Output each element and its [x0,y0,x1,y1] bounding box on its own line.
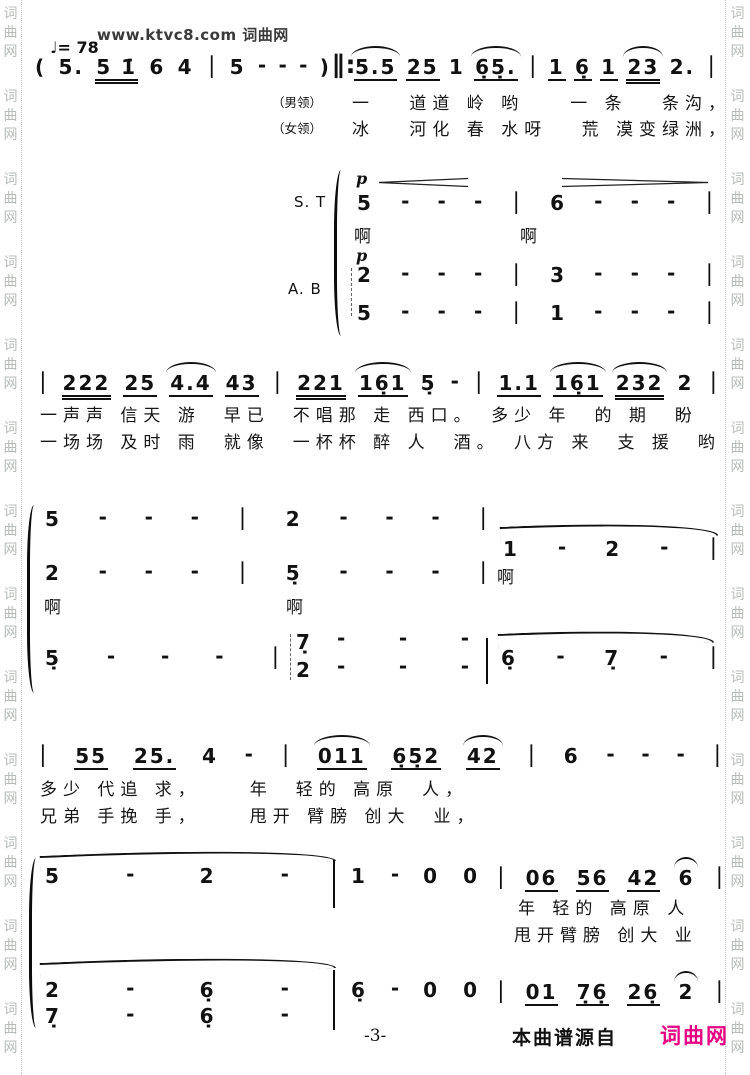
barline: ∣ [279,743,293,767]
chord-connector [290,634,291,680]
slur-arc [40,950,337,981]
right-watermark-column: 词曲网词曲网词曲网词曲网词曲网词曲网词曲网词曲网词曲网词曲网词曲网词曲网词曲网 [729,5,746,1075]
barline: ∣ [706,536,720,560]
note: 1 [502,539,520,560]
dash-note: - [630,191,640,212]
watermark-text: 词曲网 [729,337,746,394]
note: 2 [356,265,374,286]
dash-note: - [336,656,346,677]
verse-notes-line: ∣222254.443∣22116̣15̣-∣1.116̣12322∣ [36,371,720,397]
watermark-text: 词曲网 [2,1001,19,1058]
dash-note: - [338,561,348,582]
watermark-text: 词曲网 [729,88,746,145]
dash-note: - [666,263,676,284]
dash-note: - [605,744,615,765]
watermark-text: 词曲网 [729,752,746,809]
dash-note: - [384,507,394,528]
dash-note: - [398,656,408,677]
note: 25. [133,746,176,770]
barline: ∣ [704,54,718,78]
bass-chord-dashes-bottom: --- [336,658,470,679]
note: 221 [296,373,346,397]
barline: ∣ [494,979,508,1003]
note: 5.5 [354,57,397,81]
barline [333,970,335,1030]
note: 1 [549,303,567,324]
barline: ∣ [702,262,716,286]
barline: ∣ [476,560,490,584]
upper-voice-measure-1: 5-2- [44,866,290,887]
chorus-lyrics-2: 兄弟 手挽 手， 甩开 臂膀 创大 业， [40,802,480,827]
note: 43 [225,373,259,397]
note: 1 [600,57,618,81]
watermark-text: 词曲网 [729,669,746,726]
dash-note: - [278,55,288,76]
dash-note: - [400,263,410,284]
dash-note: - [593,263,603,284]
dash-note: - [106,646,116,667]
system-brace [29,858,38,1028]
dash-note: - [640,744,650,765]
note: 0 [462,866,480,887]
dash-note: - [190,507,200,528]
note: 6̣ [199,1006,217,1027]
barline: ∣ [271,370,285,394]
note: 2 [677,982,695,1003]
dash-note: - [280,978,290,999]
system-brace [334,170,343,336]
note: 232 [615,373,665,397]
note: 23 [626,57,660,81]
barline: ∣ [509,190,523,214]
barline: ∣ [494,865,508,889]
footer-source-text: 本曲谱源自 [512,1023,617,1050]
barline: ∣ [702,190,716,214]
dash-note: - [244,744,254,765]
watermark-text: 词曲网 [729,835,746,892]
barline: ∣ [713,979,727,1003]
role-label-female: （女领） [272,118,322,137]
dash-note: - [390,864,400,885]
dash-note: - [160,646,170,667]
dynamic-p: p [356,169,367,188]
dash-note: - [400,301,410,322]
site-logo: www.ktvc8.com 词曲网 [97,24,289,45]
watermark-text: 词曲网 [2,337,19,394]
note: 5̣ [44,648,62,669]
dash-note: - [666,191,676,212]
note: 1 [548,57,566,81]
dash-note: - [557,537,567,558]
note: 6̣5̣. [474,57,517,81]
note: 2. [669,57,697,78]
st-lyric-ah-1: 啊 [354,222,377,247]
note: 5 [44,509,62,530]
note: 011 [317,746,367,770]
note: 1 [350,866,368,887]
watermark-text: 词曲网 [2,420,19,477]
barline: ∣ [236,560,250,584]
barline [333,860,335,908]
note: 6̣ [500,648,518,669]
barline: ∣ [36,743,50,767]
dash-note: - [437,191,447,212]
watermark-text: 词曲网 [2,88,19,145]
dash-note: - [280,1004,290,1025]
watermark-text: 词曲网 [729,503,746,560]
echo-lyrics-2: 甩开臂膀 创大 业 [514,921,698,946]
note: ( [34,57,47,78]
barline: ∣ [526,54,540,78]
st-lyric-ah-2: 啊 [520,222,543,247]
barline [486,638,488,684]
dash-note: - [336,628,346,649]
barline: ∣ [236,506,250,530]
dash-note: - [630,263,640,284]
bass-voice-measure-3: ∣017̣6̣26̣2∣ [494,980,726,1006]
watermark-text: 词曲网 [2,5,19,62]
dash-note: - [390,978,400,999]
dash-note: - [384,561,394,582]
alto-bass-notes-top: 2---∣3---∣ [356,263,716,287]
watermark-text: 词曲网 [2,835,19,892]
watermark-text: 词曲网 [729,171,746,228]
note: 25 [123,373,157,397]
note: 4 [177,57,195,78]
lower-lyric-ah-1: 啊 [44,593,67,618]
bass-chord-top-note: 7̣ [296,630,310,654]
note: 2 [44,563,62,584]
note: 6 [677,868,695,889]
chorus-lyrics-1: 多少 代追 求， 年 轻的 高原 人， [40,775,468,800]
barline: ∣ [268,645,282,669]
dash-note: - [659,646,669,667]
lyrics-male: 一 道道 岭 哟 一 条 条沟， [352,89,731,114]
note: 6 [549,193,567,214]
dash-note: - [630,301,640,322]
watermark-text: 词曲网 [2,752,19,809]
barline: ∣ [476,506,490,530]
bass-chord-bottom-note: 2 [296,658,310,682]
barline: ∣ [706,645,720,669]
note: 42 [466,746,500,770]
barline: ∣ [509,262,523,286]
note: ) [319,57,332,78]
barline: ∣ [713,865,727,889]
dash-note: - [666,301,676,322]
note: 01 [525,982,559,1006]
note: 5̣ [420,373,438,394]
dash-note: - [450,371,460,392]
watermark-text: 词曲网 [729,254,746,311]
watermark-text: 词曲网 [2,586,19,643]
dash-note: - [473,301,483,322]
dash-note: - [98,561,108,582]
system-brace [27,505,36,693]
dash-note: - [98,507,108,528]
watermark-text: 词曲网 [729,918,746,975]
dash-note: - [593,191,603,212]
watermark-text: 词曲网 [2,503,19,560]
left-dotted-divider [21,0,22,1075]
note: 6̣ [199,980,217,1001]
note: 6̣ [574,57,592,81]
bass-voice-measure-1-top: 2-6̣- [44,980,290,1001]
note: 4.4 [169,373,212,397]
upper-voice-measure-2: 1-00 [350,866,480,887]
left-watermark-column: 词曲网词曲网词曲网词曲网词曲网词曲网词曲网词曲网词曲网词曲网词曲网词曲网词曲网 [2,5,19,1075]
note: 0 [422,980,440,1001]
page-number: -3- [364,1026,386,1046]
note: 6 [563,746,581,767]
note: 1 [448,57,466,78]
note: 42 [627,868,661,892]
right-dotted-divider [725,0,726,1075]
dash-note: - [257,55,267,76]
note: 6̣5̣2 [391,746,441,770]
watermark-text: 词曲网 [2,254,19,311]
note: 56 [576,868,610,892]
chorus-notes-line: ∣5525.4-∣0116̣5̣242∣6---∣ [36,744,724,770]
dash-note: - [125,1004,135,1025]
watermark-text: 词曲网 [2,918,19,975]
barline: ∣ [36,370,50,394]
note: 2 [44,980,62,1001]
dash-note: - [593,301,603,322]
note: 2 [604,539,622,560]
bass-voice-measure-2: 6̣-00 [350,980,480,1001]
dash-note: - [473,263,483,284]
decrescendo-hairpin [560,177,710,188]
note: 6̣ [350,980,368,1001]
lead-lyric-ah: 啊 [497,563,520,588]
note: 6 [148,57,166,78]
dash-note: - [125,864,135,885]
note: 7̣ [44,1006,62,1027]
verse-lyrics-1: 一声声 信天 游 早已 不唱那 走 西口。 多少 年 的 期 盼 [40,401,698,426]
barline: ∣ [702,300,716,324]
lower-lyric-ah-2: 啊 [286,593,309,618]
crescendo-hairpin [378,177,470,188]
dash-note: - [473,191,483,212]
note: 2 [676,373,694,394]
dash-note: - [430,561,440,582]
watermark-text: 词曲网 [729,1001,746,1058]
dash-note: - [430,507,440,528]
barline: ∣ [711,743,725,767]
note: 0 [422,866,440,887]
voice-label-st: S. T [294,193,326,211]
dash-note: - [190,561,200,582]
barline: ∣ [524,743,538,767]
watermark-text: 词曲网 [2,669,19,726]
dash-note: - [659,537,669,558]
note: 26̣ [627,982,661,1006]
watermark-text: 词曲网 [729,5,746,62]
soprano-tenor-notes: 5---∣6---∣ [356,191,716,215]
note: 16̣1 [553,373,603,397]
chord-connector [351,268,352,316]
barline: ∣ [205,54,219,78]
note: 06 [525,868,559,892]
dash-note: - [437,301,447,322]
upper-voice-notes: 5---∣2---∣ [44,507,490,531]
dash-note: - [437,263,447,284]
barline: ∣ [706,370,720,394]
note: 5 [356,303,374,324]
note: 1.1 [497,373,540,397]
bass-voice-measure-1-bottom: 7̣-6̣- [44,1006,290,1027]
note: 2 [285,509,303,530]
bass-notes-left: 5̣---∣ [44,646,282,670]
lyrics-female: 冰 河化 春 水呀 荒 漠变绿洲， [352,115,731,140]
note: 4 [201,746,219,767]
dash-note: - [214,646,224,667]
role-label-male: （男领） [272,92,322,111]
lower-voice-notes: 2---∣5̣---∣ [44,561,490,585]
dash-note: - [298,55,308,76]
melody-notes-line: 5.52516̣5̣.∣16̣1232.∣ [354,55,718,81]
barline: ∣ [509,300,523,324]
alto-bass-notes-bottom: 5---∣1---∣ [356,301,716,325]
note: 0 [462,980,480,1001]
note: 3 [549,265,567,286]
note: 5. [57,57,85,78]
dash-note: - [675,744,685,765]
watermark-text: 词曲网 [2,171,19,228]
echo-lyrics-1: 年 轻的 高原 人 [518,894,690,919]
dash-note: - [144,561,154,582]
note: 5̣ [285,563,303,584]
lead-voice-notes: 1-2-∣ [502,537,720,561]
dash-note: - [125,978,135,999]
note: 5 1̇ [95,57,138,81]
upper-voice-measure-3: ∣0656426∣ [494,866,726,892]
note: 55 [74,746,108,770]
note: 16̣1 [358,373,408,397]
bass-chord-dashes-top: --- [336,630,470,651]
footer-brand: 词曲网 [660,1020,729,1050]
dash-note: - [460,656,470,677]
bass-notes-right: 6̣-7̣-∣ [500,646,720,670]
intro-notes-line: (5.5 1̇64∣5---) [34,55,332,81]
note: 5 [229,57,247,78]
dash-note: - [400,191,410,212]
watermark-text: 词曲网 [729,420,746,477]
voice-label-ab: A. B [288,280,322,298]
dash-note: - [555,646,565,667]
dash-note: - [144,507,154,528]
note: 7̣6̣ [576,982,610,1006]
note: 7̣ [603,648,621,669]
verse-lyrics-2: 一场场 及时 雨 就像 一杯杯 醉 人 酒。 八方 来 支 援 哟 [40,428,721,453]
note: 25 [406,57,440,81]
note: 2 [199,866,217,887]
note: 222 [62,373,112,397]
barline: ∣ [472,370,486,394]
watermark-text: 词曲网 [729,586,746,643]
note: 5 [356,193,374,214]
dash-note: - [338,507,348,528]
dash-note: - [398,628,408,649]
dash-note: - [460,628,470,649]
dash-note: - [280,864,290,885]
note: 5 [44,866,62,887]
